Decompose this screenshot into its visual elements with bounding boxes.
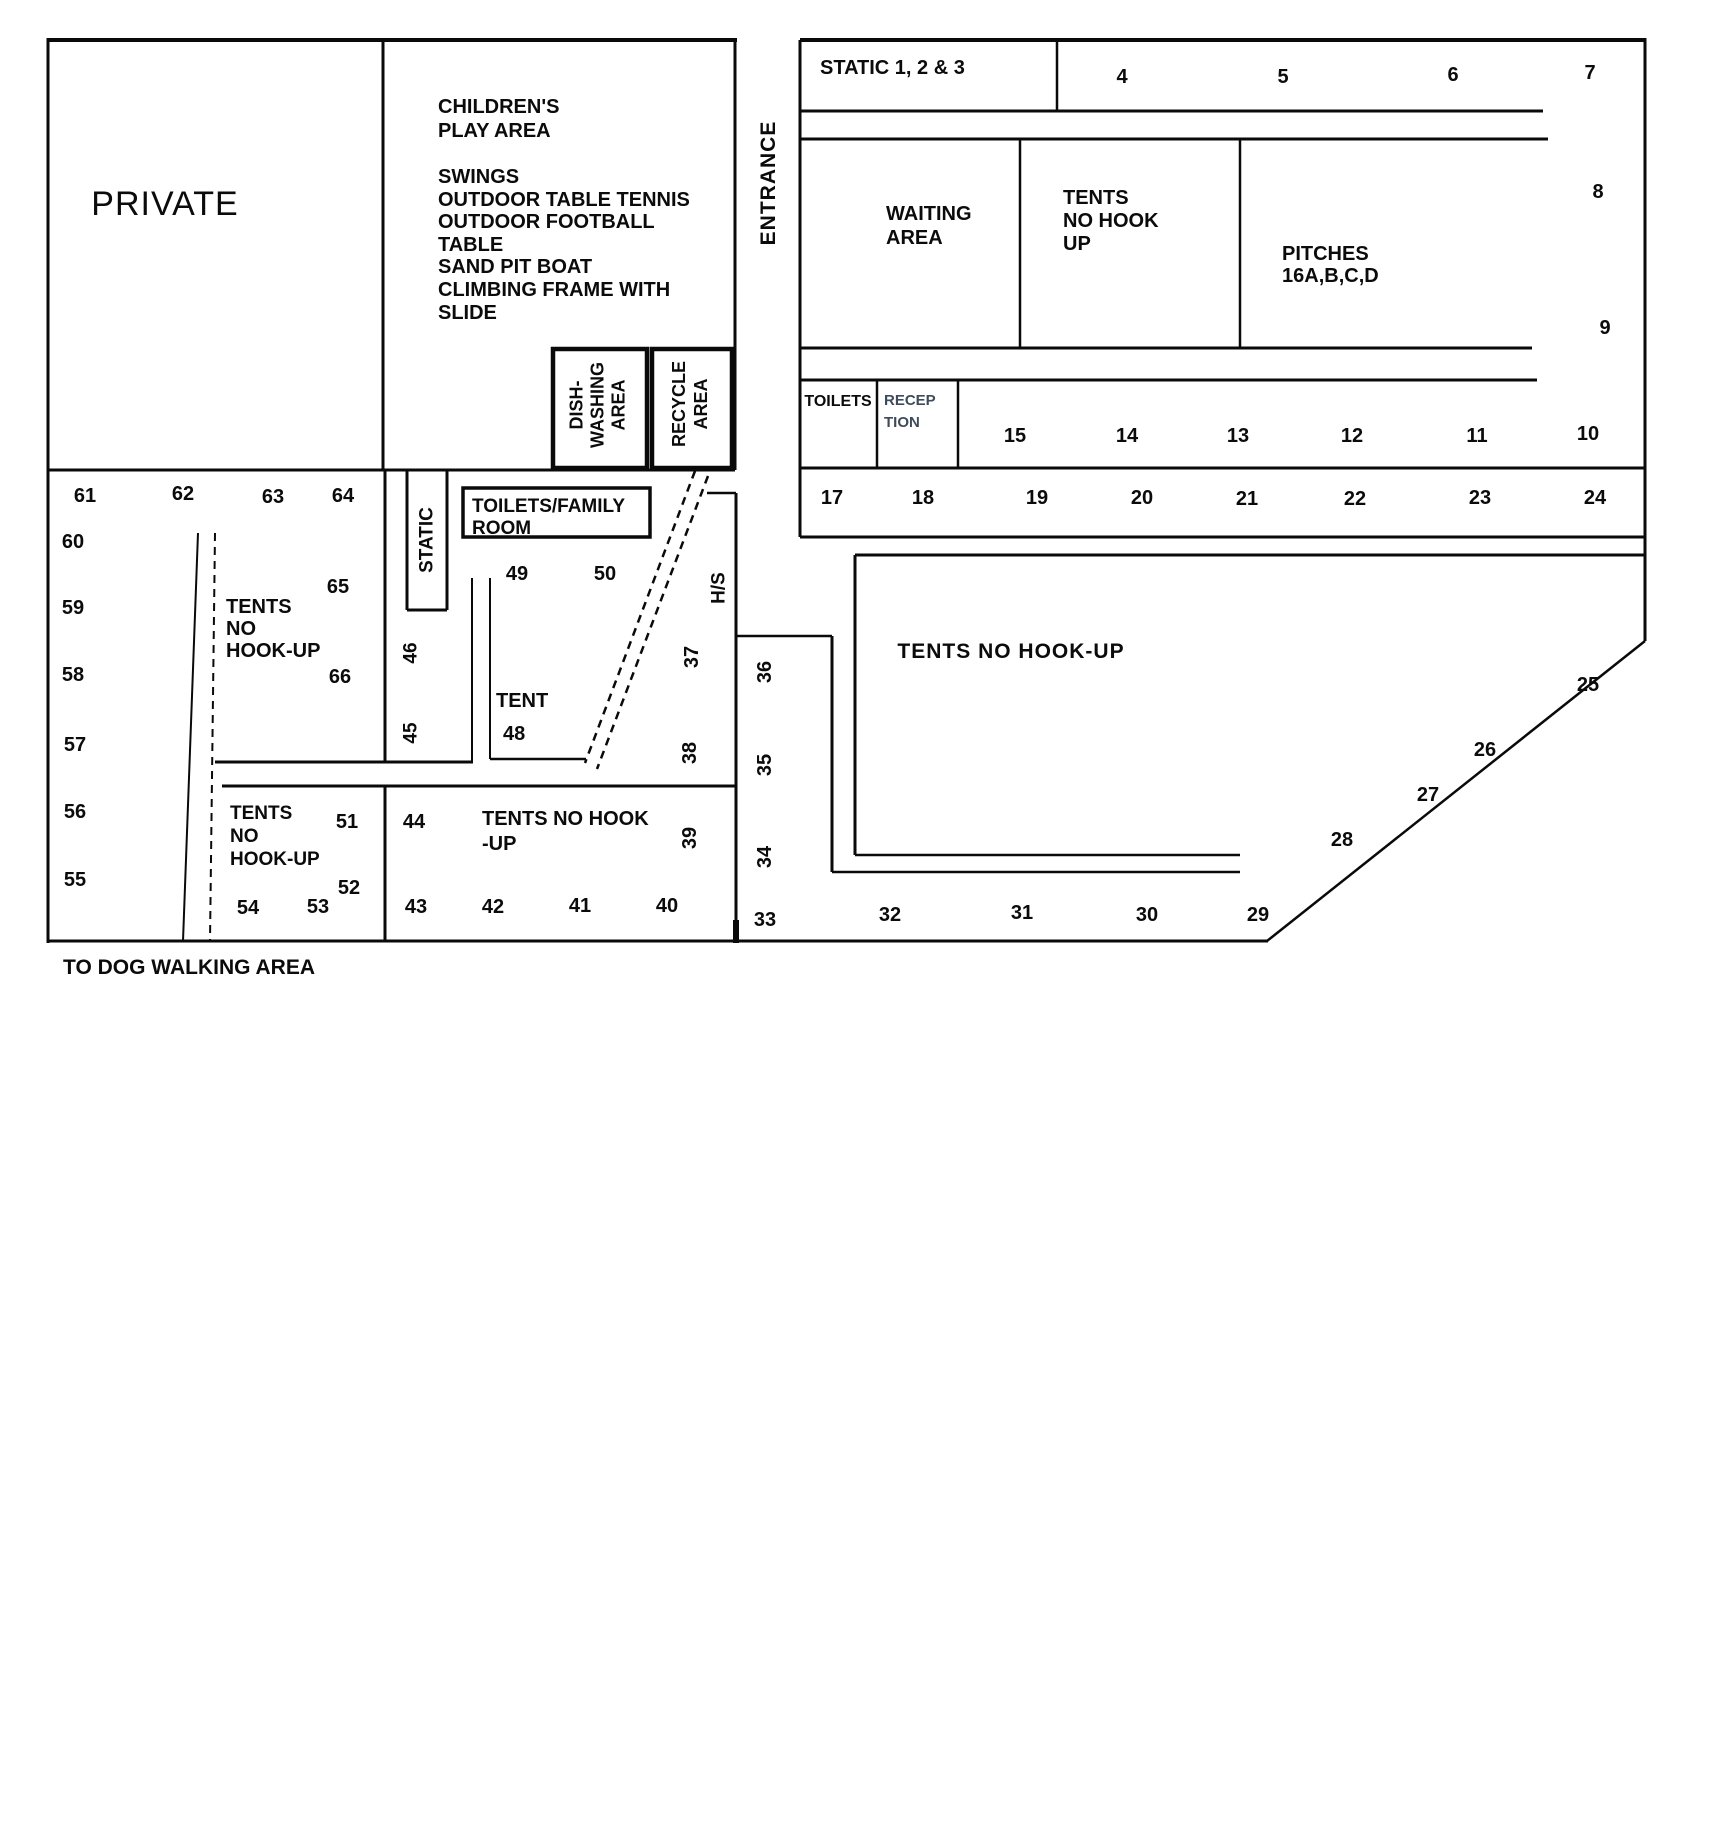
pitch-label-8: 8 xyxy=(1592,181,1603,203)
area-label-pitches-16abcd-line: PITCHES xyxy=(1282,243,1379,265)
pitch-label-65: 65 xyxy=(327,576,349,598)
pitch-label-51: 51 xyxy=(336,811,358,833)
pitch-label-43: 43 xyxy=(405,896,427,918)
pitch-label-13: 13 xyxy=(1227,425,1249,447)
pitch-label-33: 33 xyxy=(754,909,776,931)
pitch-label-55: 55 xyxy=(64,869,86,891)
pitch-label-45: 45 xyxy=(400,722,421,743)
pitch-label-35: 35 xyxy=(754,754,776,776)
pitch-label-56: 56 xyxy=(64,801,86,823)
area-label-dish-washing-line: AREA xyxy=(609,362,630,448)
area-label-reception-line: RECEP xyxy=(884,390,936,412)
pitch-label-25: 25 xyxy=(1577,674,1599,696)
area-label-hs: H/S xyxy=(708,572,729,604)
area-label-play-equipment: SWINGSOUTDOOR TABLE TENNISOUTDOOR FOOTBA… xyxy=(438,166,690,324)
area-label-play-equipment-line: SWINGS xyxy=(438,166,690,189)
area-label-tents-no-hook-up-entrance-line: TENTS xyxy=(1063,187,1159,210)
pitch-label-39: 39 xyxy=(679,827,701,849)
area-label-private: PRIVATE xyxy=(91,185,238,223)
area-label-recycle-line: AREA xyxy=(690,361,712,447)
pitch-label-41: 41 xyxy=(569,895,591,917)
pitch-label-57: 57 xyxy=(64,734,86,756)
pitch-label-18: 18 xyxy=(912,487,934,509)
pitch-label-62: 62 xyxy=(172,483,194,505)
pitch-label-61: 61 xyxy=(74,485,96,507)
pitch-label-20: 20 xyxy=(1131,487,1153,509)
area-label-play-equipment-line: SLIDE xyxy=(438,302,690,325)
pitch-label-5: 5 xyxy=(1277,66,1288,88)
pitch-label-31: 31 xyxy=(1011,902,1033,924)
area-label-tents-no-hookup-left-lower: TENTSNOHOOK-UP xyxy=(230,802,320,871)
pitch-label-6: 6 xyxy=(1447,64,1458,86)
area-label-tents-no-hook-bottom-mid: TENTS NO HOOK-UP xyxy=(482,807,649,857)
pitch-label-22: 22 xyxy=(1344,488,1366,510)
map-linework xyxy=(0,0,1728,1848)
area-label-play-equipment-line: OUTDOOR TABLE TENNIS xyxy=(438,189,690,212)
pitch-label-37: 37 xyxy=(681,646,703,668)
campsite-map: PRIVATECHILDREN'SPLAY AREASWINGSOUTDOOR … xyxy=(0,0,1728,1848)
area-label-tents-no-hook-up-entrance-line: UP xyxy=(1063,233,1159,256)
pitch-label-28: 28 xyxy=(1331,829,1353,851)
area-label-tents-no-hook-bottom-mid-line: -UP xyxy=(482,832,649,857)
area-label-reception-line: TION xyxy=(884,412,936,434)
pitch-label-17: 17 xyxy=(821,487,843,509)
area-label-pitches-16abcd: PITCHES16A,B,C,D xyxy=(1282,243,1379,287)
area-label-to-dog-walking: TO DOG WALKING AREA xyxy=(63,956,315,980)
pitch-label-24: 24 xyxy=(1584,487,1606,509)
pitch-label-48: 48 xyxy=(503,723,525,745)
area-label-waiting-area: WAITINGAREA xyxy=(886,202,972,250)
area-label-pitches-16abcd-line: 16A,B,C,D xyxy=(1282,265,1379,287)
pitch-label-14: 14 xyxy=(1116,425,1138,447)
area-label-play-equipment-line: SAND PIT BOAT xyxy=(438,256,690,279)
area-label-childrens-play: CHILDREN'SPLAY AREA xyxy=(438,96,559,143)
pitch-label-4: 4 xyxy=(1116,66,1127,88)
area-label-childrens-play-line: PLAY AREA xyxy=(438,120,559,144)
area-label-play-equipment-line: CLIMBING FRAME WITH xyxy=(438,279,690,302)
area-label-recycle-line: RECYCLE xyxy=(668,361,690,447)
pitch-label-27: 27 xyxy=(1417,784,1439,806)
pitch-label-66: 66 xyxy=(329,666,351,688)
pitch-label-59: 59 xyxy=(62,597,84,619)
pitch-label-34: 34 xyxy=(754,846,776,868)
area-label-play-equipment-line: TABLE xyxy=(438,234,690,257)
pitch-label-54: 54 xyxy=(237,897,259,919)
pitch-label-29: 29 xyxy=(1247,904,1269,926)
pitch-label-53: 53 xyxy=(307,896,329,918)
area-label-dish-washing-line: WASHING xyxy=(588,362,609,448)
pitch-label-58: 58 xyxy=(62,664,84,686)
area-label-tents-no-hookup-big: TENTS NO HOOK-UP xyxy=(897,640,1124,664)
pitch-label-44: 44 xyxy=(403,811,425,833)
area-label-tents-no-hookup-left-upper-line: NO xyxy=(226,618,320,640)
area-label-tents-no-hook-up-entrance: TENTSNO HOOKUP xyxy=(1063,187,1159,256)
area-label-play-equipment-line: OUTDOOR FOOTBALL xyxy=(438,211,690,234)
pitch-label-19: 19 xyxy=(1026,487,1048,509)
area-label-static-vertical: STATIC xyxy=(416,507,437,573)
pitch-label-52: 52 xyxy=(338,877,360,899)
pitch-label-46: 46 xyxy=(400,642,421,663)
area-label-waiting-area-line: AREA xyxy=(886,226,972,250)
pitch-label-36: 36 xyxy=(754,661,776,683)
area-label-tent: TENT xyxy=(496,690,548,712)
pitch-label-12: 12 xyxy=(1341,425,1363,447)
area-label-entrance: ENTRANCE xyxy=(757,121,781,246)
pitch-label-50: 50 xyxy=(594,563,616,585)
pitch-label-11: 11 xyxy=(1466,425,1487,447)
pitch-label-42: 42 xyxy=(482,896,504,918)
pitch-label-7: 7 xyxy=(1584,62,1595,84)
area-label-dish-washing-line: DISH- xyxy=(567,362,588,448)
pitch-label-23: 23 xyxy=(1469,487,1491,509)
area-label-recycle: RECYCLEAREA xyxy=(668,361,712,447)
area-label-toilets-family-room: TOILETS/FAMILYROOM xyxy=(472,496,625,540)
area-label-tents-no-hookup-left-lower-line: HOOK-UP xyxy=(230,848,320,871)
area-label-static-1-2-3: STATIC 1, 2 & 3 xyxy=(820,57,965,79)
pitch-label-60: 60 xyxy=(62,531,84,553)
pitch-label-38: 38 xyxy=(679,742,701,764)
pitch-label-63: 63 xyxy=(262,486,284,508)
map-line xyxy=(183,533,198,941)
area-label-tents-no-hook-up-entrance-line: NO HOOK xyxy=(1063,210,1159,233)
pitch-label-10: 10 xyxy=(1577,423,1599,445)
area-label-toilets: TOILETS xyxy=(804,393,871,411)
pitch-label-64: 64 xyxy=(332,485,354,507)
area-label-dish-washing: DISH-WASHINGAREA xyxy=(567,362,630,448)
pitch-label-21: 21 xyxy=(1236,488,1258,510)
area-label-tents-no-hook-bottom-mid-line: TENTS NO HOOK xyxy=(482,807,649,832)
pitch-label-15: 15 xyxy=(1004,425,1026,447)
pitch-label-9: 9 xyxy=(1599,317,1610,339)
pitch-label-40: 40 xyxy=(656,895,678,917)
area-label-tents-no-hookup-left-lower-line: NO xyxy=(230,825,320,848)
area-label-waiting-area-line: WAITING xyxy=(886,202,972,226)
pitch-label-30: 30 xyxy=(1136,904,1158,926)
pitch-label-32: 32 xyxy=(879,904,901,926)
area-label-toilets-family-room-line: ROOM xyxy=(472,518,625,540)
area-label-tents-no-hookup-left-upper-line: HOOK-UP xyxy=(226,640,320,662)
area-label-toilets-family-room-line: TOILETS/FAMILY xyxy=(472,496,625,518)
area-label-tents-no-hookup-left-upper-line: TENTS xyxy=(226,596,320,618)
pitch-label-49: 49 xyxy=(506,563,528,585)
pitch-label-26: 26 xyxy=(1474,739,1496,761)
area-label-reception: RECEPTION xyxy=(884,390,936,434)
area-label-childrens-play-line: CHILDREN'S xyxy=(438,96,559,120)
map-line xyxy=(210,533,215,941)
area-label-tents-no-hookup-left-upper: TENTSNOHOOK-UP xyxy=(226,596,320,662)
area-label-tents-no-hookup-left-lower-line: TENTS xyxy=(230,802,320,825)
